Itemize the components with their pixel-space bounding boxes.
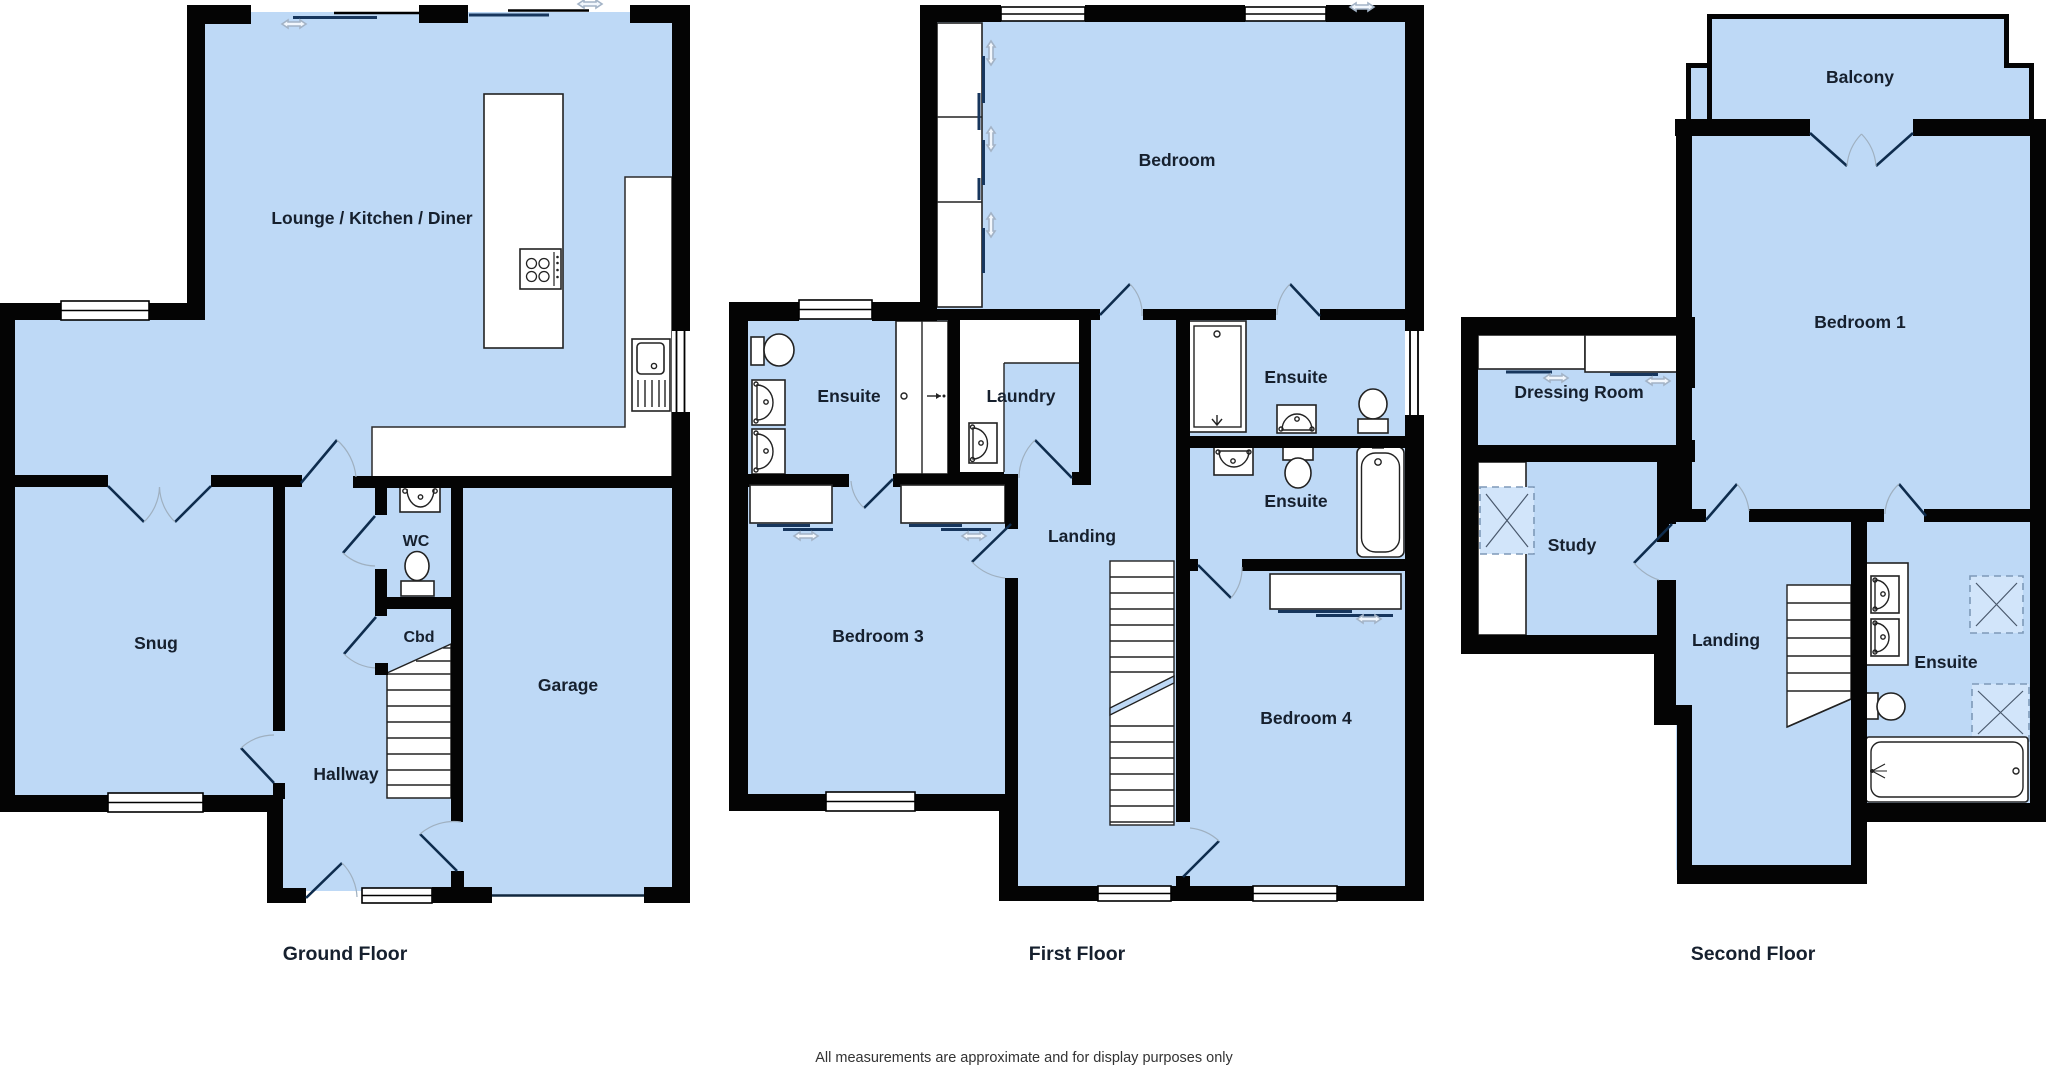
svg-text:Bedroom: Bedroom [1139,150,1216,170]
svg-text:Garage: Garage [538,675,599,695]
svg-text:Study: Study [1548,535,1597,555]
svg-text:Snug: Snug [134,633,178,653]
svg-text:Ground Floor: Ground Floor [283,943,408,965]
svg-text:Hallway: Hallway [313,764,378,784]
svg-text:Ensuite: Ensuite [817,386,880,406]
svg-text:Lounge / Kitchen / Diner: Lounge / Kitchen / Diner [271,208,472,228]
svg-text:Laundry: Laundry [986,386,1055,406]
svg-text:Ensuite: Ensuite [1264,367,1327,387]
svg-text:Second Floor: Second Floor [1691,943,1816,965]
svg-text:Bedroom 3: Bedroom 3 [832,626,924,646]
svg-text:Dressing Room: Dressing Room [1514,382,1643,402]
svg-text:All measurements are approxima: All measurements are approximate and for… [815,1050,1233,1066]
svg-text:Landing: Landing [1048,526,1116,546]
svg-text:Ensuite: Ensuite [1914,652,1977,672]
svg-text:First Floor: First Floor [1029,943,1126,965]
svg-text:Bedroom 4: Bedroom 4 [1260,708,1352,728]
svg-text:Ensuite: Ensuite [1264,491,1327,511]
svg-text:Bedroom 1: Bedroom 1 [1814,312,1906,332]
svg-text:WC: WC [403,533,430,550]
svg-text:Landing: Landing [1692,630,1760,650]
svg-text:Cbd: Cbd [403,629,434,646]
svg-text:Balcony: Balcony [1826,67,1894,87]
